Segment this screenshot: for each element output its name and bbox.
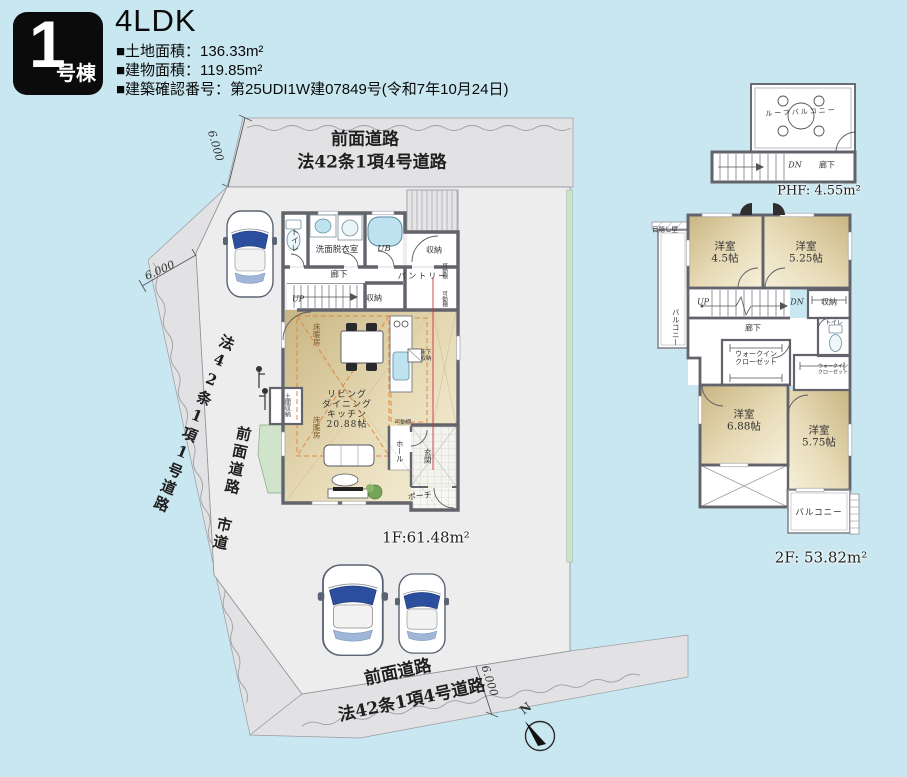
room-bedroom-3: 洋室 6.88帖 xyxy=(727,409,761,433)
stairs-dn-2f: DN xyxy=(790,299,803,308)
floor-heating-label-2: 床暖房 xyxy=(312,416,320,439)
stairs-dn-phf: DN xyxy=(788,162,801,171)
room-hallway-2f: 廊下 xyxy=(745,325,761,334)
room-washroom: 洗面脱衣室 xyxy=(316,246,359,256)
stairs-up-2f: UP xyxy=(697,299,709,308)
shelf-label-2: 可動棚 xyxy=(441,291,447,308)
compass xyxy=(525,721,555,751)
road-top-label-1: 前面道路 xyxy=(331,130,399,149)
room-bedroom-1: 洋室 4.5帖 xyxy=(711,241,738,265)
floor2-area-label: 2F: 53.82m² xyxy=(775,550,867,567)
floorplan-flyer: 1 号棟 4LDK ■土地面積：136.33m² ■建物面積：119.85m² … xyxy=(0,0,907,777)
shelf-label-3: 可動棚 xyxy=(395,420,412,426)
room-wic-center: ウォークイン クローゼット xyxy=(735,351,777,367)
room-hallway-1f: 廊下 xyxy=(330,271,347,281)
spec-building-area: ■建物面積：119.85m² xyxy=(116,59,262,80)
phf-area-label: PHF: 4.55m² xyxy=(777,185,861,200)
room-closet-top: 収納 xyxy=(426,247,442,256)
room-doma-storage: 土間収納 xyxy=(283,393,290,417)
underfloor-storage-label: 床下 収納 xyxy=(420,350,431,362)
room-toilet-2f: トイレ xyxy=(825,321,843,328)
room-hallway-phf: 廊下 xyxy=(819,162,835,171)
road-top-label-2: 法42条1項4号道路 xyxy=(297,153,446,172)
spec-land-area: ■土地面積：136.33m² xyxy=(116,40,263,61)
room-balcony-2f: バルコニー xyxy=(795,509,842,519)
floor-heating-label-1: 床暖房 xyxy=(312,323,320,346)
badge-suffix: 号棟 xyxy=(56,57,96,86)
spec-confirmation-number: ■建築確認番号：第25UDI1W建07849号(令和7年10月24日) xyxy=(116,78,509,99)
room-ldk: リビング ダイニング キッチン 20.88帖 xyxy=(322,390,372,430)
stairs-up-1f: UP xyxy=(292,296,304,305)
room-entrance: 玄関 xyxy=(423,449,431,464)
room-wic-right: ウォークイン クローゼット xyxy=(818,364,848,375)
room-bath: UB xyxy=(377,245,390,255)
room-closet-stairs: 収納 xyxy=(366,295,382,304)
green-strip xyxy=(567,190,573,562)
room-bedroom-4: 洋室 5.75帖 xyxy=(802,425,836,449)
shelf-label-1: 可動棚 xyxy=(441,263,447,280)
room-bedroom-2: 洋室 5.25帖 xyxy=(789,241,823,265)
floor1-area-label: 1F:61.48m² xyxy=(382,530,470,547)
page-title: 4LDK xyxy=(115,3,197,39)
room-toilet-1f: トイレ xyxy=(290,228,299,252)
room-hall: ホール xyxy=(395,440,403,463)
room-balcony-left: バルコニー xyxy=(671,308,679,346)
ladder-strip xyxy=(850,494,859,534)
building-number-badge: 1 号棟 xyxy=(13,12,103,95)
privacy-wall-label: 目隠し壁 xyxy=(652,226,678,233)
room-closet-2f: 収納 xyxy=(821,299,837,308)
